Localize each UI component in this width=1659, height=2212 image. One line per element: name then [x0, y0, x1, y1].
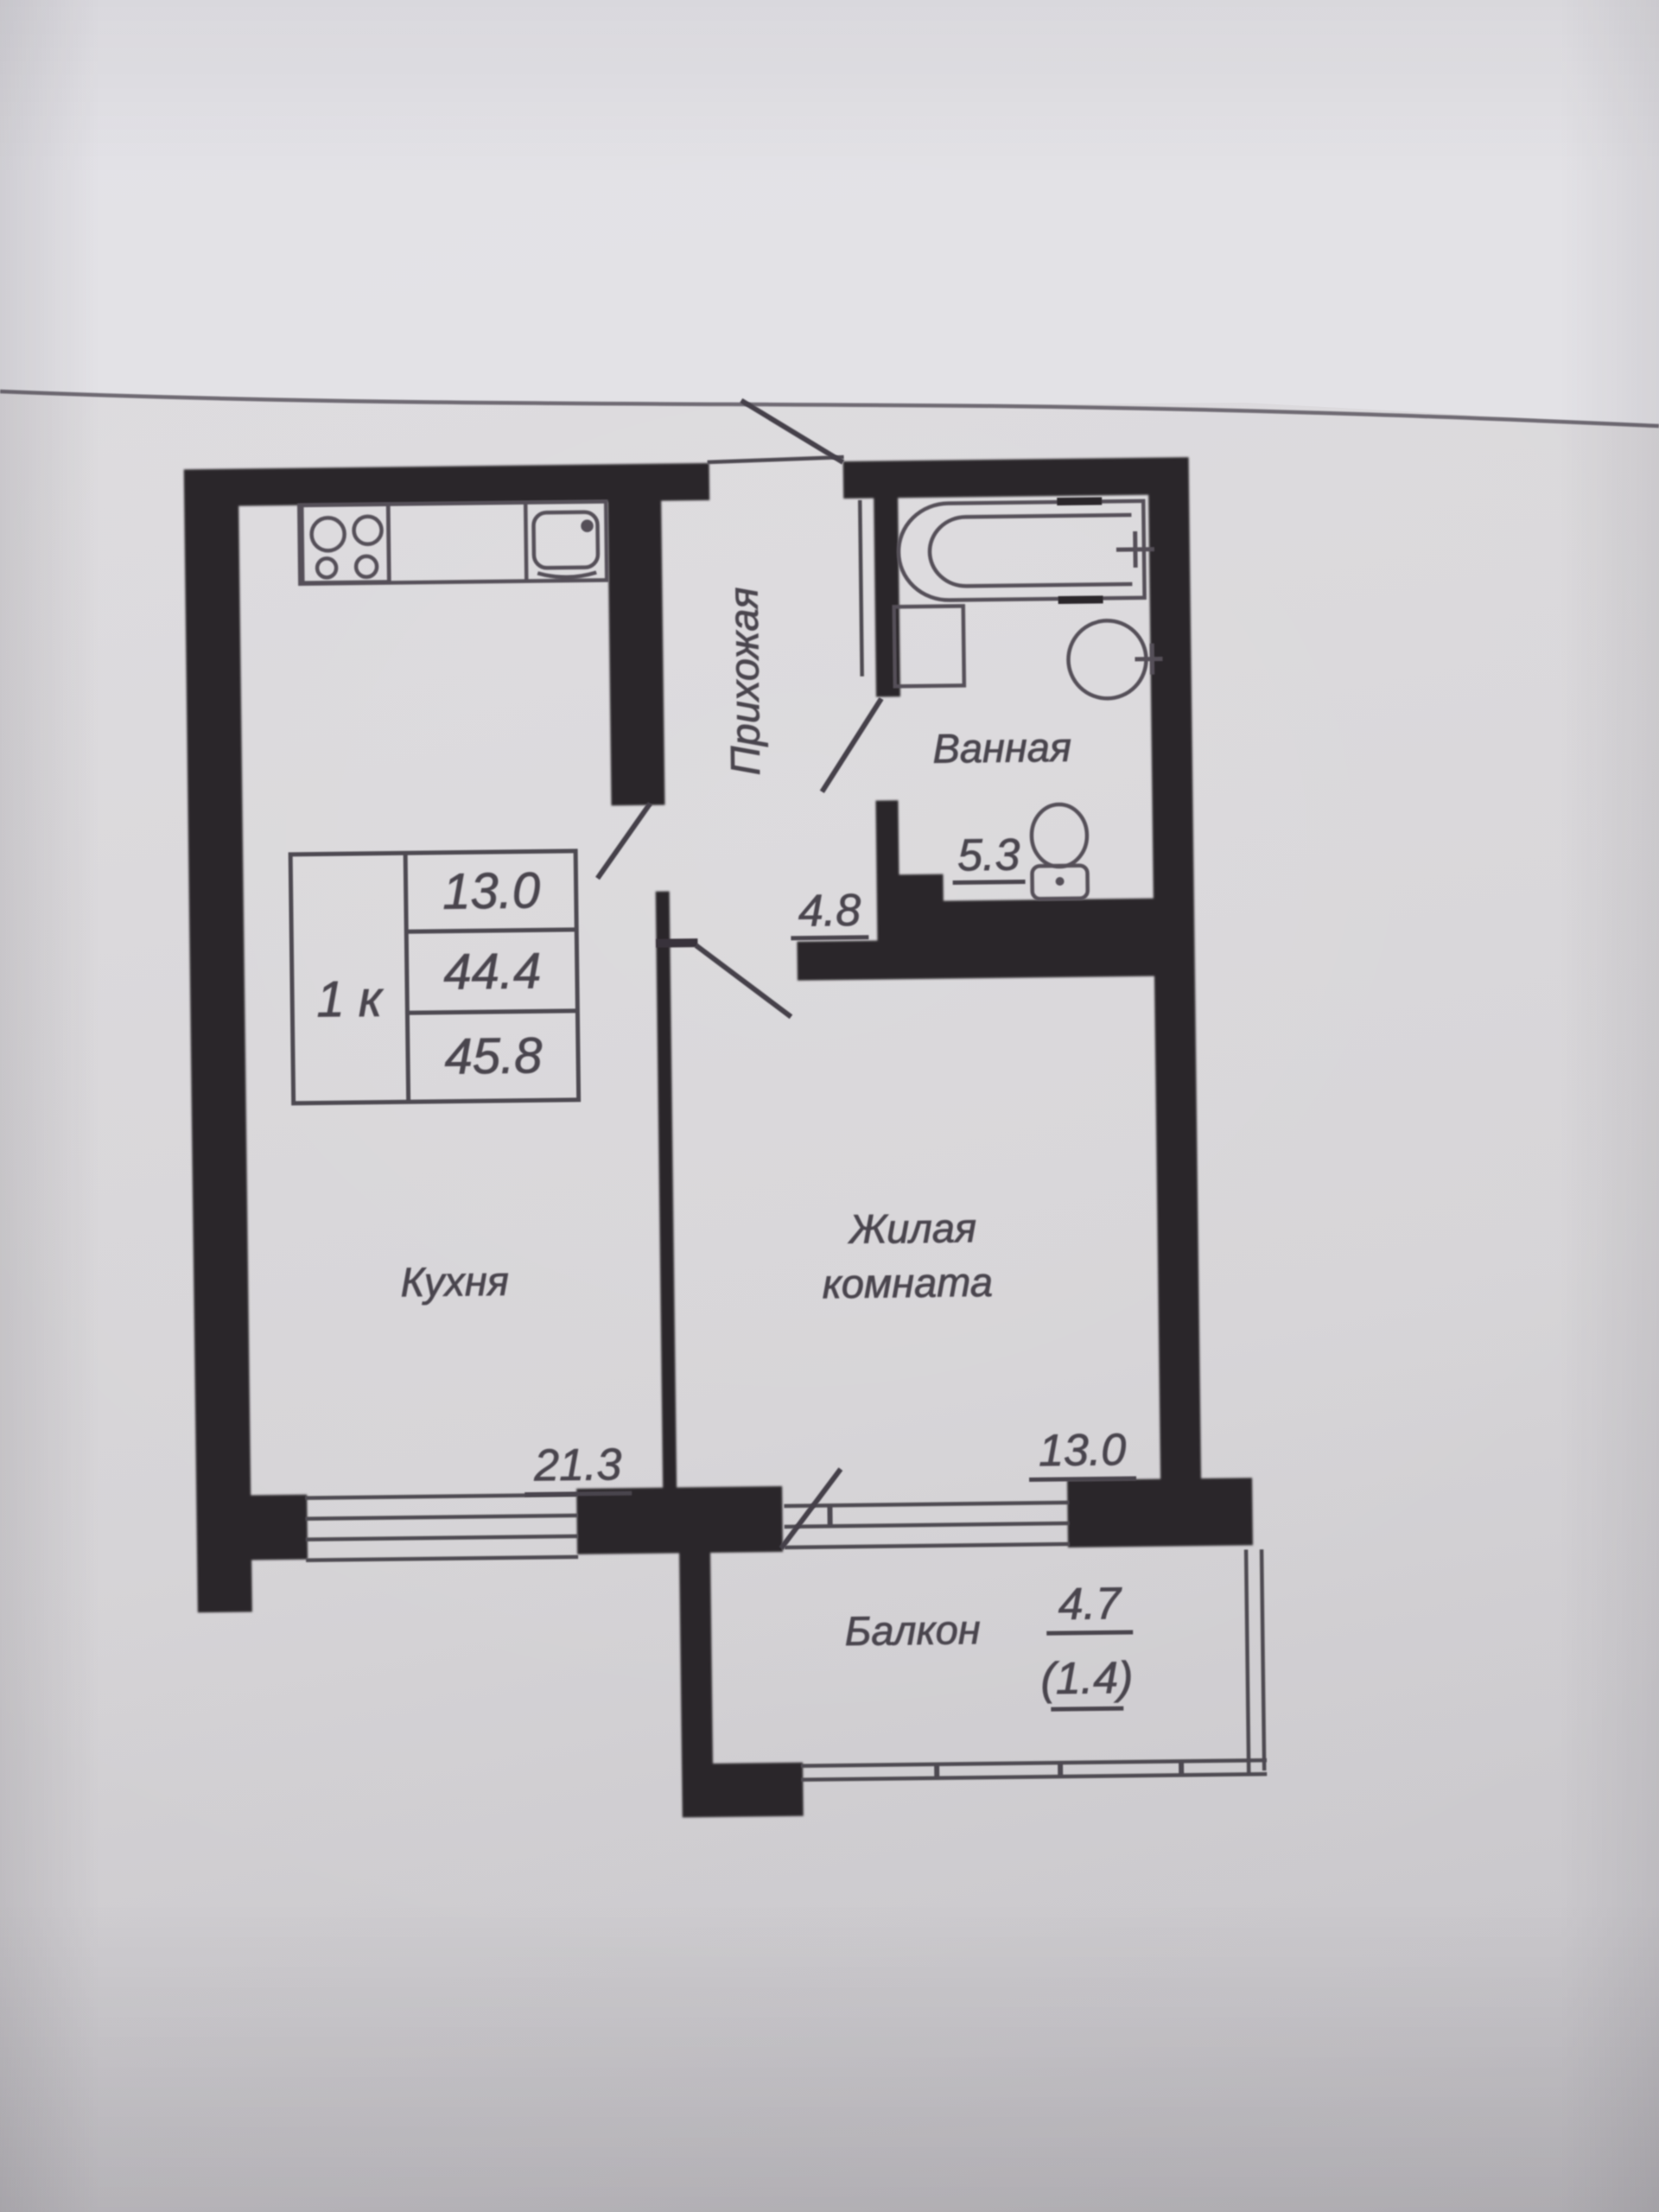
label-hallway: Прихожая: [720, 587, 768, 776]
entrance-threshold-line: [708, 457, 844, 462]
bathtub-icon: [898, 497, 1154, 607]
area-kitchen: 21.3: [533, 1440, 622, 1491]
wall-bottom-right-pier: [1067, 1478, 1253, 1548]
living-door-jamb: [656, 943, 697, 944]
wall-balcony-left: [679, 1553, 713, 1767]
area-living: 13.0: [1039, 1425, 1127, 1476]
floor-plan-photo: 1 к 13.0 44.4 45.8 Прихожая 4.8 Ванная 5…: [0, 0, 1659, 2212]
toilet-icon: [1032, 804, 1088, 899]
wall-living-left: [656, 892, 677, 1492]
bathroom-wall-inner-line: [860, 500, 861, 677]
area-balcony: 4.7: [1058, 1579, 1122, 1630]
wall-window-pier-left: [251, 1495, 308, 1560]
label-kitchen: Кухня: [400, 1258, 509, 1306]
paper-upper-sheet: [0, 0, 1659, 425]
wall-sink-icon: [1068, 620, 1163, 699]
floor-plan-drawing: 1 к 13.0 44.4 45.8 Прихожая 4.8 Ванная 5…: [0, 0, 1659, 2212]
wall-left-exterior: [184, 469, 252, 1613]
area-balcony-secondary: (1.4): [1040, 1653, 1134, 1704]
underline-living-area: [1029, 1478, 1136, 1480]
table-total-area: 45.8: [444, 1027, 543, 1084]
underline-kitchen-area: [524, 1493, 632, 1495]
wall-bathroom-left-lower: [875, 800, 899, 876]
label-bathroom: Ванная: [932, 724, 1071, 772]
washbasin-icon: [894, 606, 964, 686]
wall-kitchen-hallway: [607, 499, 664, 806]
kitchen-sink-icon: [533, 512, 598, 577]
underline-balcony-area: [1046, 1632, 1133, 1633]
underline-balcony-secondary: [1051, 1708, 1123, 1709]
underline-hallway-area: [791, 938, 868, 938]
wall-bottom-center: [576, 1486, 783, 1554]
balcony-parapet: [798, 1549, 1267, 1780]
area-bathroom: 5.3: [957, 830, 1020, 881]
wall-balcony-corner: [682, 1763, 804, 1818]
living-door-leaf: [696, 944, 791, 1018]
kitchen-door-leaf: [596, 804, 651, 879]
table-unit-type: 1 к: [316, 971, 385, 1028]
wall-top-right: [843, 457, 1185, 499]
entrance-door-leaf: [741, 399, 843, 463]
label-balcony: Балкон: [844, 1606, 981, 1654]
table-area-no-balcony: 44.4: [443, 943, 542, 1000]
underline-bathroom-area: [953, 881, 1026, 882]
wall-right-exterior: [1148, 457, 1202, 1484]
label-living-line2: комната: [822, 1259, 993, 1306]
bathroom-door-leaf: [821, 698, 882, 791]
label-living-line1: Жилая: [848, 1205, 977, 1252]
wall-toilet-step: [876, 874, 944, 943]
table-living-area: 13.0: [442, 862, 541, 919]
kitchen-window: [305, 1495, 578, 1560]
living-room-window: [784, 1503, 1070, 1548]
stove-icon: [302, 504, 389, 582]
area-hallway: 4.8: [798, 886, 861, 937]
